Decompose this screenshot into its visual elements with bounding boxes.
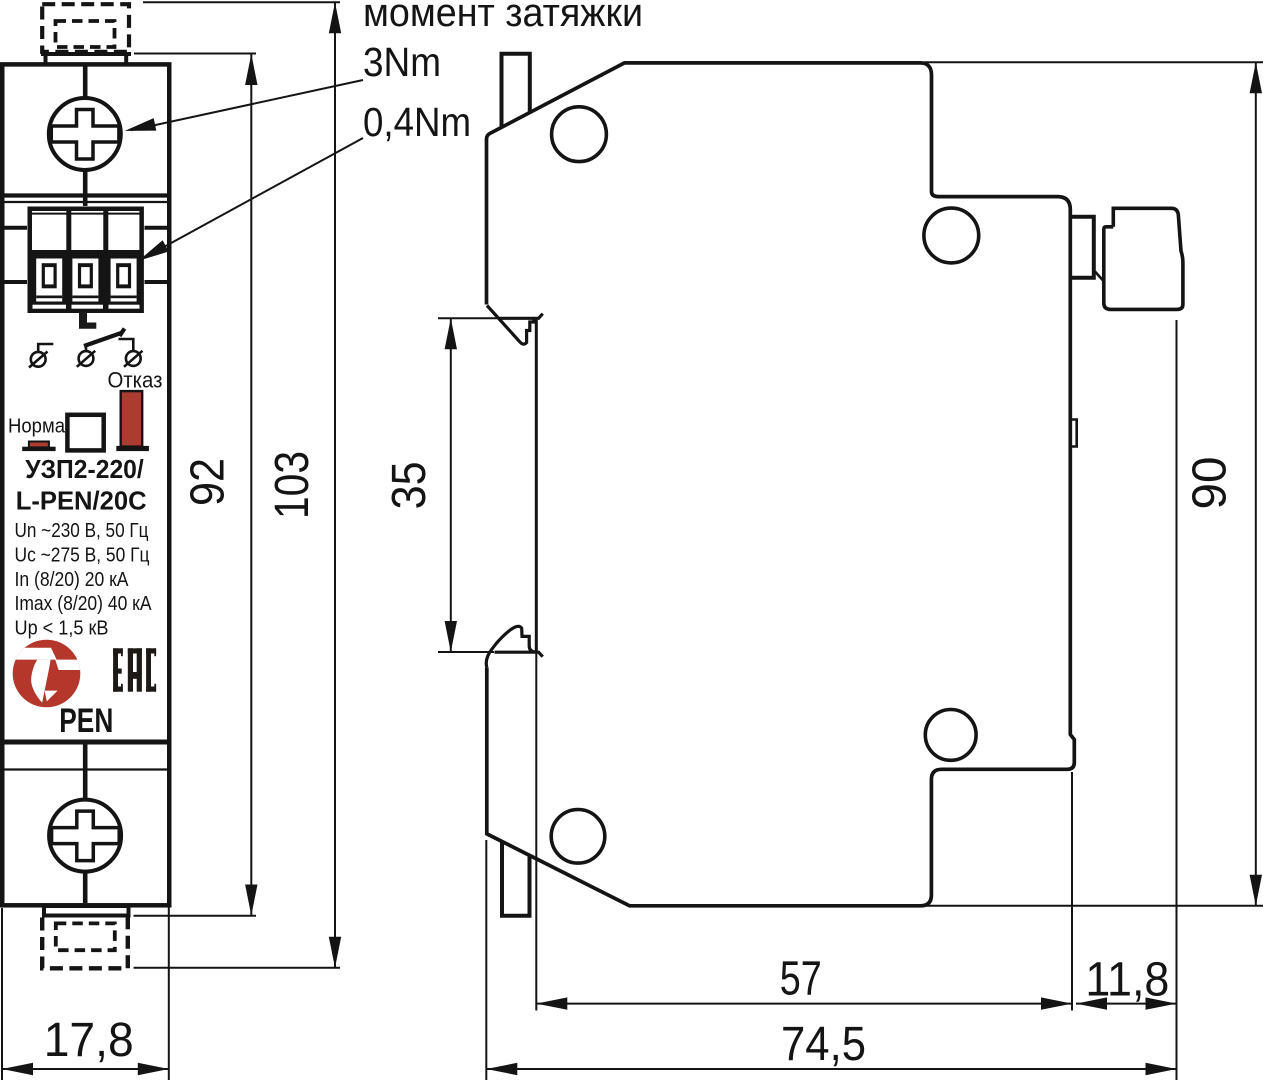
svg-text:УЗП2-220/: УЗП2-220/ (25, 454, 144, 484)
svg-text:103: 103 (266, 451, 319, 519)
svg-text:74,5: 74,5 (781, 1018, 866, 1071)
svg-text:Up < 1,5 кВ: Up < 1,5 кВ (15, 617, 109, 640)
svg-text:Imax (8/20) 40 кА: Imax (8/20) 40 кА (15, 592, 152, 615)
svg-text:57: 57 (780, 953, 822, 1006)
svg-text:момент затяжки: момент затяжки (363, 0, 643, 35)
svg-text:L-PEN/20C: L-PEN/20C (16, 485, 147, 515)
svg-text:Uc ~275 В, 50 Гц: Uc ~275 В, 50 Гц (15, 544, 150, 567)
svg-text:In (8/20) 20 кА: In (8/20) 20 кА (15, 568, 129, 591)
svg-text:0,4Nm: 0,4Nm (363, 99, 471, 145)
svg-text:11,8: 11,8 (1085, 954, 1169, 1007)
svg-text:3Nm: 3Nm (363, 39, 441, 85)
svg-text:PEN: PEN (59, 702, 113, 740)
svg-text:Отказ: Отказ (108, 368, 163, 393)
svg-text:17,8: 17,8 (44, 1014, 134, 1067)
svg-text:Норма: Норма (8, 416, 66, 438)
svg-text:35: 35 (383, 461, 436, 509)
svg-text:90: 90 (1184, 457, 1237, 510)
svg-text:Un ~230 В, 50 Гц: Un ~230 В, 50 Гц (15, 519, 149, 542)
svg-text:92: 92 (182, 458, 235, 506)
